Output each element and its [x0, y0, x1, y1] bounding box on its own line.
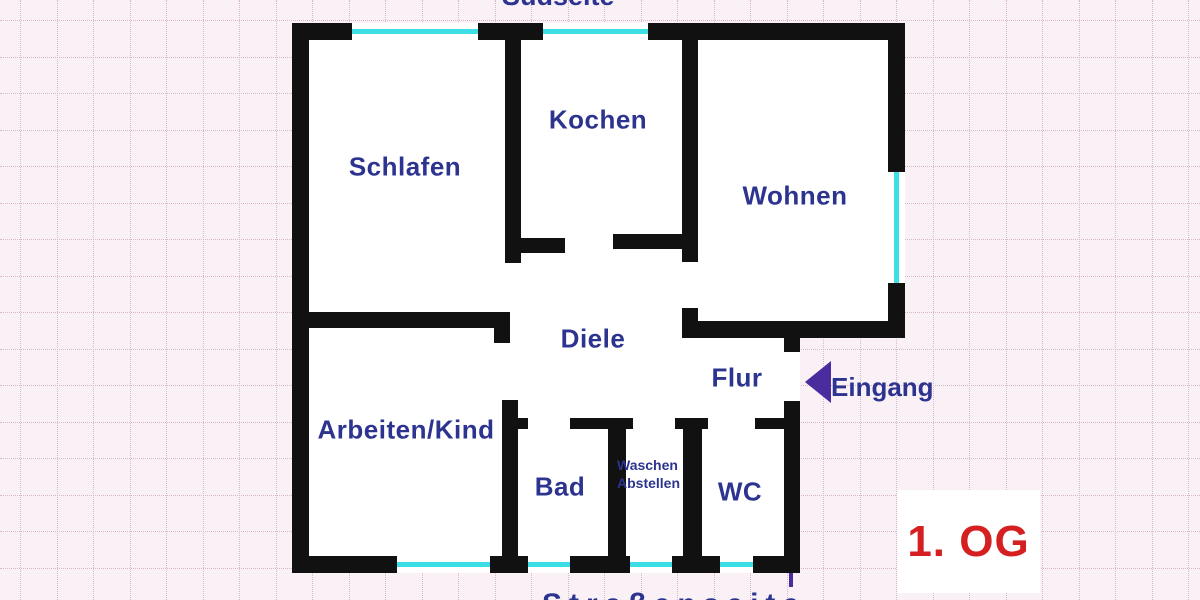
wall-wohnen-left-corner — [682, 308, 698, 338]
grid-line — [203, 0, 204, 600]
grid-line — [1115, 0, 1116, 600]
window-kochen — [543, 29, 648, 34]
wall-outer-bottom-a — [292, 556, 397, 573]
window-arbeiten — [397, 562, 490, 567]
floor-badge: 1. OG — [897, 490, 1040, 593]
wall-schlafen-kochen — [505, 40, 521, 263]
room-label-waschen-line2: Abstellen — [617, 474, 680, 492]
wall-outer-bottom-e — [753, 556, 800, 573]
room-label-flur: Flur — [711, 363, 762, 394]
wall-outer-top-c — [648, 23, 905, 40]
window-wc — [720, 562, 753, 567]
window-bad — [528, 562, 570, 567]
entrance-label: Eingang — [831, 372, 934, 403]
wall-outer-left — [292, 23, 309, 573]
window-schlafen — [352, 29, 478, 34]
grid-line — [0, 20, 1200, 21]
grid-line — [93, 0, 94, 600]
wall-flur-right-stub — [784, 338, 800, 352]
wall-kochen-bottom-right — [613, 234, 683, 249]
grid-line — [1188, 0, 1189, 600]
purple-tick-mark — [789, 573, 793, 587]
wall-arbeiten-top — [292, 312, 510, 328]
entrance-arrow-icon — [805, 361, 831, 403]
grid-line — [1152, 0, 1153, 600]
room-label-arbeiten: Arbeiten/Kind — [318, 415, 495, 446]
wall-outer-top-b — [478, 23, 543, 40]
floor-plan: Schlafen Kochen Wohnen Diele Flur Arbeit… — [0, 0, 1200, 600]
wall-bad-waschen — [608, 418, 626, 573]
room-label-wohnen: Wohnen — [742, 181, 847, 212]
grid-line — [20, 0, 21, 600]
wall-waschen-wc — [683, 418, 702, 573]
room-label-waschen-abstellen: Waschen Abstellen — [617, 456, 680, 492]
wall-outer-right-upper — [888, 23, 905, 172]
room-label-diele: Diele — [561, 324, 626, 355]
grid-line — [1079, 0, 1080, 600]
room-label-kochen: Kochen — [549, 105, 647, 136]
grid-line — [130, 0, 131, 600]
wall-kochen-wohnen — [682, 40, 698, 262]
room-label-schlafen: Schlafen — [349, 152, 461, 183]
wall-wohnen-bottom — [683, 321, 905, 338]
floor-badge-label: 1. OG — [907, 517, 1029, 567]
wall-bad-left — [502, 400, 518, 573]
room-label-waschen-line1: Waschen — [617, 456, 680, 474]
wall-kochen-bottom-left — [509, 238, 565, 253]
window-wohnen — [894, 172, 899, 283]
side-label-top: Südseite — [502, 0, 615, 12]
wall-arbeiten-top-stub — [494, 312, 510, 343]
wall-bad-left-tee — [518, 418, 528, 429]
grid-line — [276, 0, 277, 600]
wall-row-wc-right-top — [755, 418, 800, 429]
window-waschen — [630, 562, 672, 567]
wall-outer-top-a — [292, 23, 352, 40]
side-label-bottom: Straßenseite — [542, 590, 806, 600]
grid-line — [166, 0, 167, 600]
room-label-bad: Bad — [535, 472, 586, 503]
room-label-wc: WC — [718, 477, 762, 508]
grid-line — [239, 0, 240, 600]
grid-line — [57, 0, 58, 600]
grid-line — [1042, 0, 1043, 600]
